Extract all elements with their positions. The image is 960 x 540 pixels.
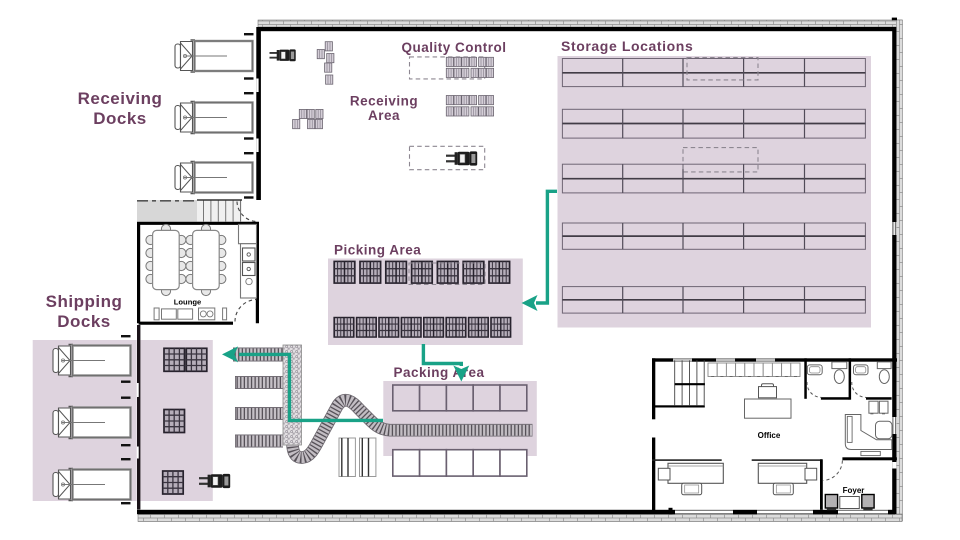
svg-text:Office: Office — [758, 431, 781, 440]
svg-text:Shipping: Shipping — [46, 292, 123, 311]
svg-text:Packing Area: Packing Area — [394, 365, 485, 380]
svg-text:Docks: Docks — [93, 109, 147, 128]
svg-text:Foyer: Foyer — [843, 486, 865, 495]
svg-text:Receiving: Receiving — [350, 94, 418, 109]
svg-text:Lounge: Lounge — [174, 298, 201, 307]
svg-text:Picking Area: Picking Area — [334, 243, 421, 258]
svg-text:Quality Control: Quality Control — [402, 40, 507, 55]
svg-text:Area: Area — [368, 108, 400, 123]
svg-text:Docks: Docks — [57, 312, 111, 331]
svg-text:Receiving: Receiving — [78, 89, 163, 108]
svg-text:Storage Locations: Storage Locations — [561, 38, 693, 54]
